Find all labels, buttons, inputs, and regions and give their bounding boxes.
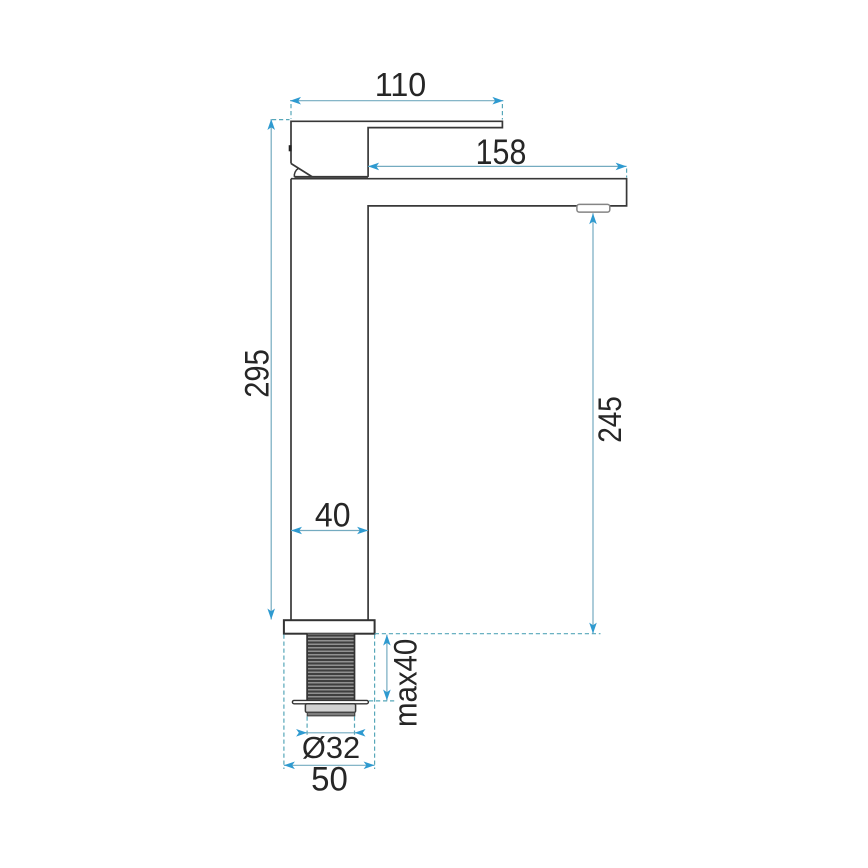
svg-text:245: 245	[592, 396, 629, 443]
svg-text:Ø32: Ø32	[302, 730, 360, 765]
svg-text:max40: max40	[387, 639, 424, 727]
svg-text:295: 295	[237, 349, 276, 397]
svg-text:50: 50	[311, 761, 348, 799]
svg-text:158: 158	[476, 132, 527, 171]
svg-text:110: 110	[375, 66, 426, 104]
svg-text:40: 40	[315, 496, 351, 534]
